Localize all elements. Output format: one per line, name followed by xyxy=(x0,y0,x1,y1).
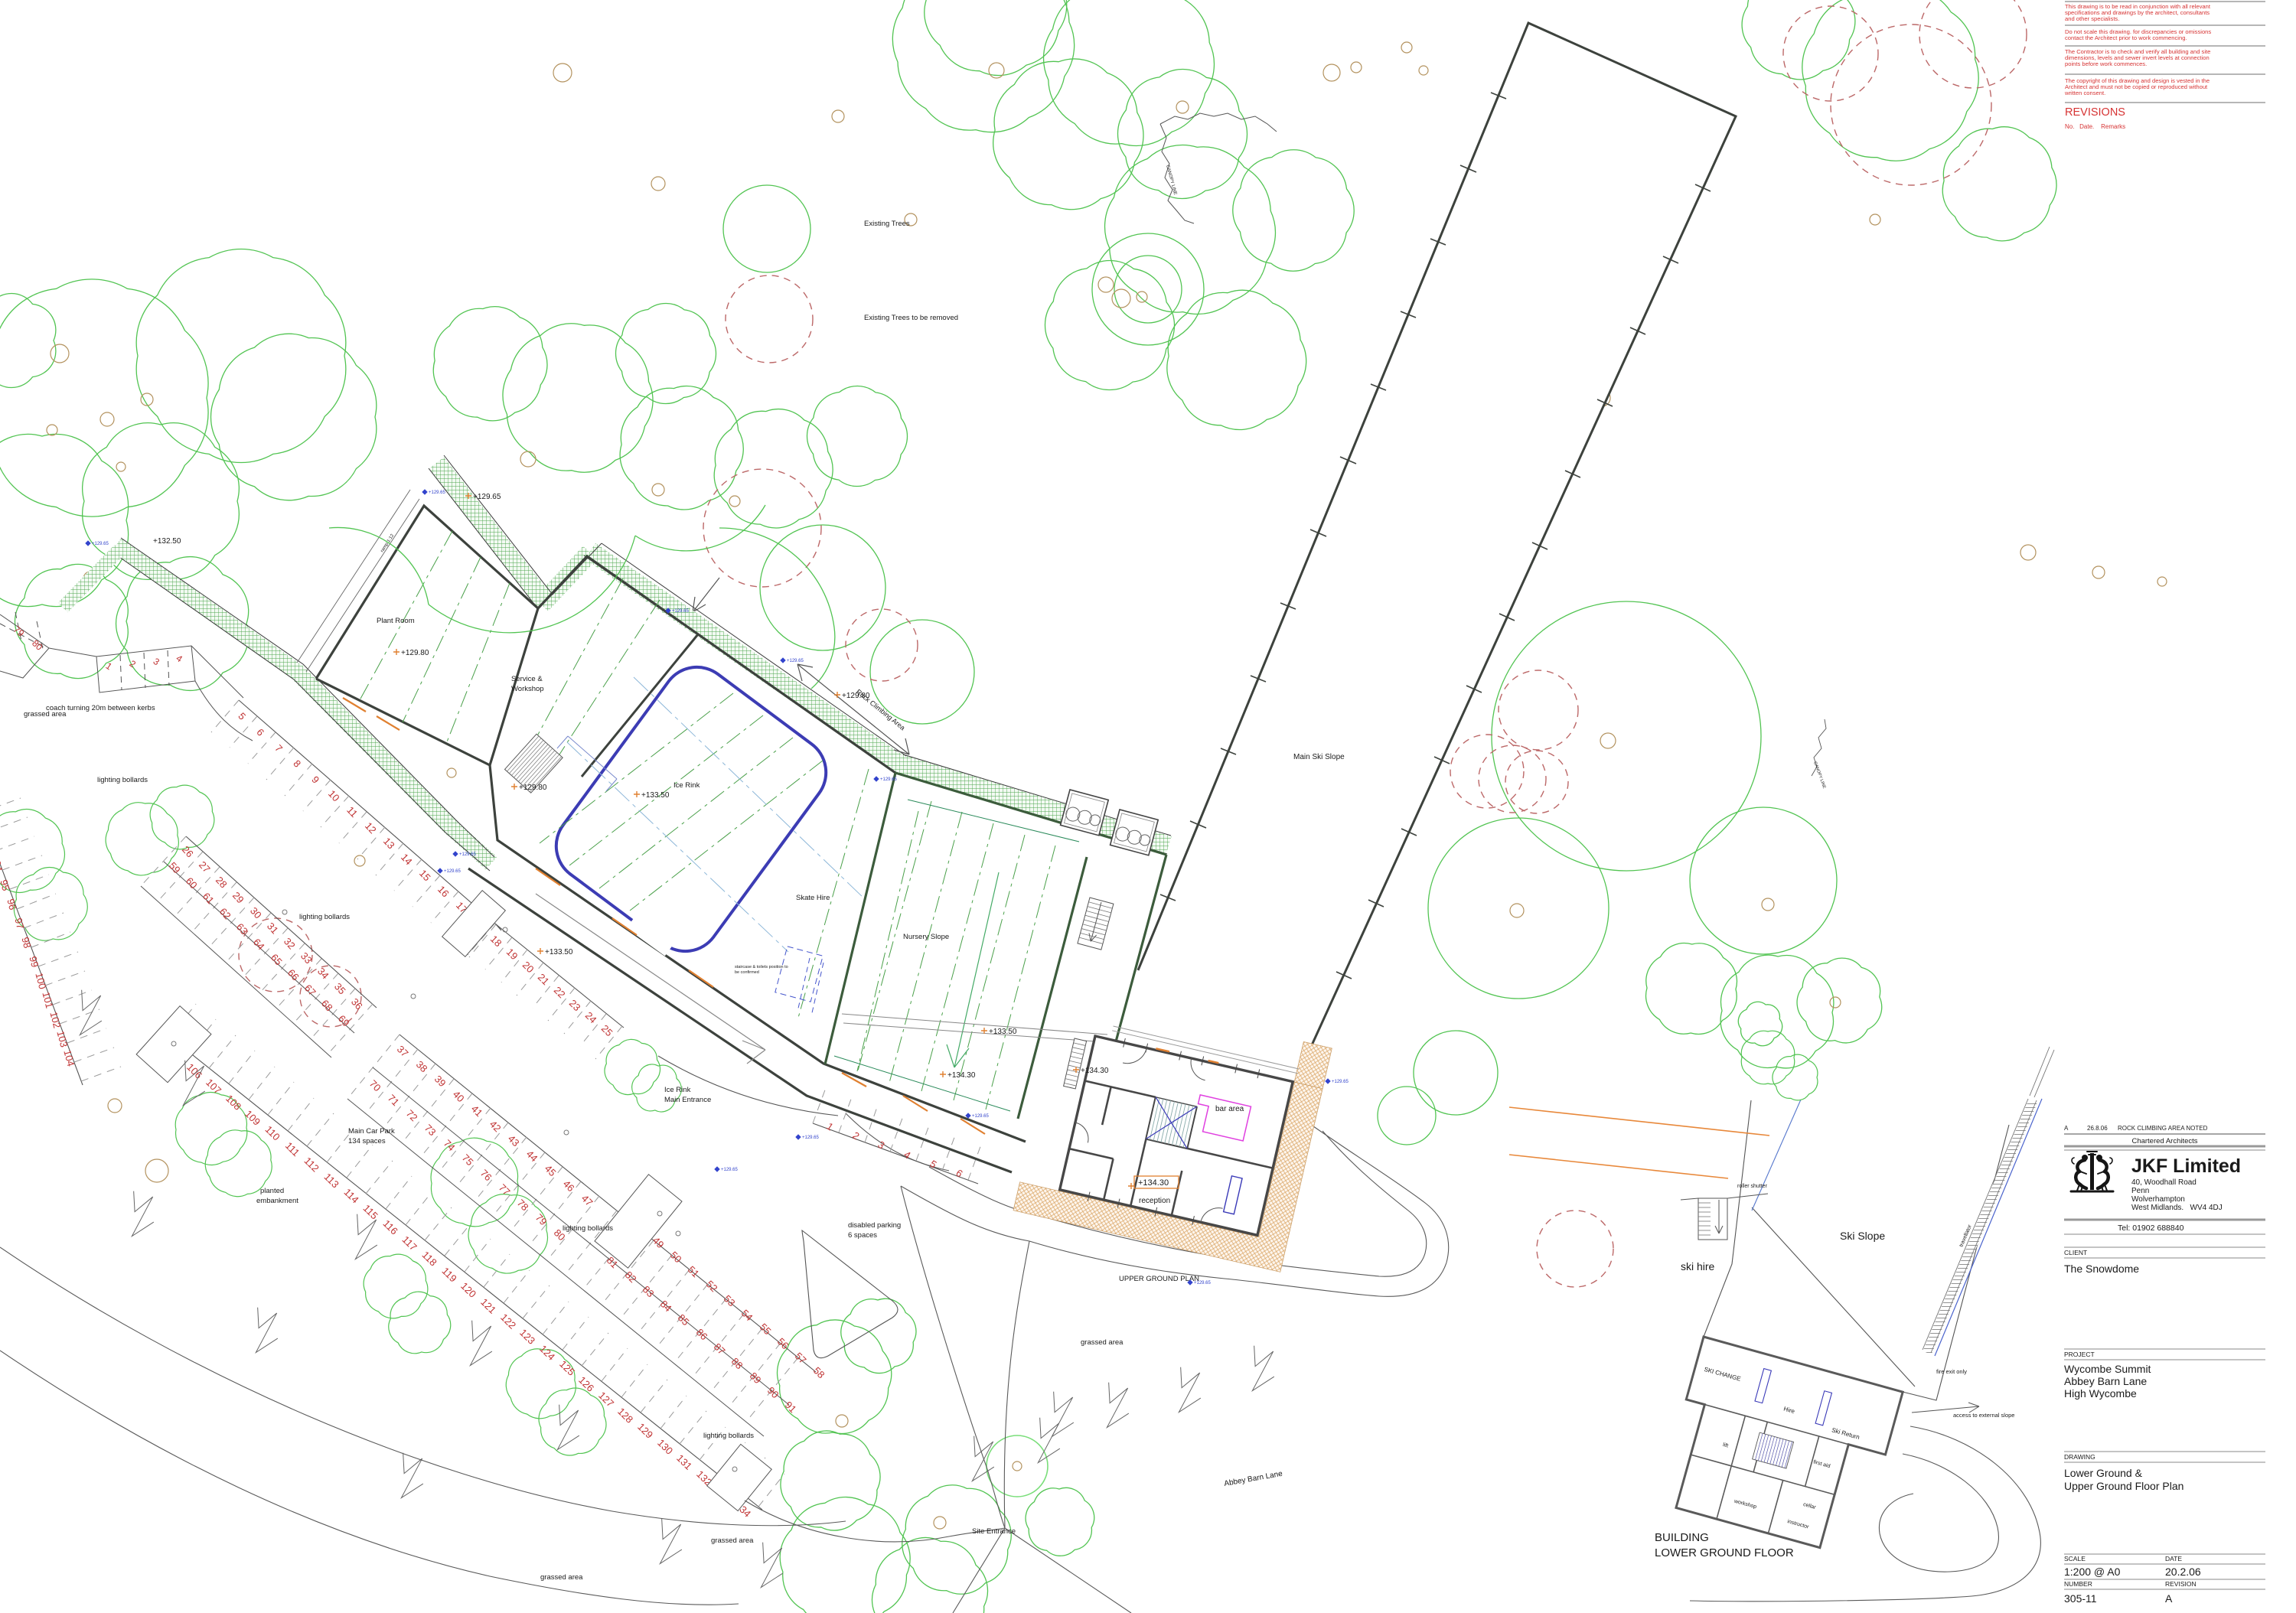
svg-text:6 spaces: 6 spaces xyxy=(848,1231,877,1240)
svg-text:Nursery Slope: Nursery Slope xyxy=(903,933,949,941)
svg-text:LOWER GROUND FLOOR: LOWER GROUND FLOOR xyxy=(1655,1546,1794,1559)
svg-text:be confirmed: be confirmed xyxy=(735,970,759,975)
svg-text:26.8.06: 26.8.06 xyxy=(2087,1125,2108,1132)
svg-text:written consent.: written consent. xyxy=(2064,90,2105,96)
svg-text:Upper Ground Floor Plan: Upper Ground Floor Plan xyxy=(2064,1480,2183,1492)
svg-text:Main Ski Slope: Main Ski Slope xyxy=(1293,753,1345,761)
svg-text:disabled parking: disabled parking xyxy=(848,1221,901,1230)
svg-text:+134.30: +134.30 xyxy=(947,1071,976,1080)
svg-text:SCALE: SCALE xyxy=(2064,1555,2086,1562)
svg-text:+129.65: +129.65 xyxy=(672,609,690,614)
svg-text:+129.65: +129.65 xyxy=(1332,1080,1349,1084)
svg-text:+134.30: +134.30 xyxy=(1138,1178,1169,1188)
svg-text:+129.65: +129.65 xyxy=(1194,1281,1212,1286)
svg-text:Ice Rink: Ice Rink xyxy=(664,1086,691,1094)
svg-text:and other specialists.: and other specialists. xyxy=(2065,15,2119,22)
svg-text:+132.50: +132.50 xyxy=(153,537,181,546)
svg-text:+129.65: +129.65 xyxy=(92,542,109,546)
svg-text:DATE: DATE xyxy=(2165,1555,2182,1562)
svg-text:+129.65: +129.65 xyxy=(444,869,461,874)
svg-text:JKF Limited: JKF Limited xyxy=(2131,1155,2241,1177)
svg-text:+129.65: +129.65 xyxy=(802,1136,820,1140)
svg-text:+129.65: +129.65 xyxy=(429,490,446,495)
svg-text:+129.80: +129.80 xyxy=(519,784,547,792)
svg-text:+129.65: +129.65 xyxy=(787,659,804,663)
svg-text:grassed area: grassed area xyxy=(24,710,67,719)
svg-text:access to external slope: access to external slope xyxy=(1953,1412,2014,1419)
svg-text:contact the Architect prior to: contact the Architect prior to work comm… xyxy=(2065,34,2187,41)
svg-text:Skate Hire: Skate Hire xyxy=(796,894,830,902)
svg-text:grassed area: grassed area xyxy=(540,1573,583,1582)
svg-text:Lower Ground &: Lower Ground & xyxy=(2064,1467,2143,1479)
svg-text:20.2.06: 20.2.06 xyxy=(2165,1566,2201,1578)
svg-text:+129.65: +129.65 xyxy=(880,777,898,782)
svg-text:CLIENT: CLIENT xyxy=(2064,1249,2087,1256)
svg-text:BUILDING: BUILDING xyxy=(1655,1531,1709,1544)
svg-text:Ice Rink: Ice Rink xyxy=(673,781,700,790)
svg-text:Abbey Barn Lane: Abbey Barn Lane xyxy=(2064,1375,2147,1387)
svg-text:PROJECT: PROJECT xyxy=(2064,1351,2095,1358)
svg-text:fire exit only: fire exit only xyxy=(1936,1368,1967,1375)
svg-text:134 spaces: 134 spaces xyxy=(348,1137,386,1145)
svg-text:Site Entrance: Site Entrance xyxy=(972,1527,1016,1536)
svg-text:grassed area: grassed area xyxy=(1081,1338,1124,1347)
svg-text:+129.80: +129.80 xyxy=(842,692,870,700)
svg-text:+133.50: +133.50 xyxy=(545,948,573,956)
svg-text:A: A xyxy=(2165,1592,2173,1605)
svg-text:40, Woodhall Road: 40, Woodhall Road xyxy=(2131,1178,2197,1187)
svg-text:bar area: bar area xyxy=(1215,1105,1244,1113)
svg-text:ROCK CLIMBING AREA NOTED: ROCK CLIMBING AREA NOTED xyxy=(2118,1125,2208,1132)
svg-text:Existing Trees to be removed: Existing Trees to be removed xyxy=(864,314,958,322)
svg-text:+129.65: +129.65 xyxy=(972,1114,990,1119)
svg-text:reception: reception xyxy=(1139,1197,1170,1205)
svg-text:Wolverhampton: Wolverhampton xyxy=(2131,1195,2185,1204)
svg-text:A: A xyxy=(2064,1125,2069,1132)
svg-text:REVISIONS: REVISIONS xyxy=(2065,106,2125,119)
svg-text:grassed area: grassed area xyxy=(711,1536,754,1545)
svg-text:Tel: 01902 688840: Tel: 01902 688840 xyxy=(2118,1224,2184,1233)
svg-text:305-11: 305-11 xyxy=(2064,1592,2097,1605)
svg-text:Wycombe Summit: Wycombe Summit xyxy=(2064,1363,2151,1375)
svg-text:High Wycombe: High Wycombe xyxy=(2064,1387,2137,1400)
svg-text:lighting bollards: lighting bollards xyxy=(299,913,350,921)
svg-text:Penn: Penn xyxy=(2131,1187,2149,1195)
svg-text:+129.65: +129.65 xyxy=(459,852,477,857)
svg-text:planted: planted xyxy=(260,1187,284,1195)
svg-text:Ski Slope: Ski Slope xyxy=(1840,1230,1885,1242)
svg-text:ski hire: ski hire xyxy=(1681,1260,1715,1272)
svg-text:lighting bollards: lighting bollards xyxy=(563,1224,613,1233)
svg-text:lighting bollards: lighting bollards xyxy=(97,776,148,784)
svg-text:points before work commences.: points before work commences. xyxy=(2065,60,2147,67)
svg-text:roller shutter: roller shutter xyxy=(1737,1184,1768,1189)
svg-text:West Midlands. WV4 4DJ: West Midlands. WV4 4DJ xyxy=(2131,1204,2223,1212)
svg-text:Service &: Service & xyxy=(511,675,543,683)
svg-text:lighting bollards: lighting bollards xyxy=(703,1432,754,1440)
svg-text:Main Entrance: Main Entrance xyxy=(664,1096,711,1104)
svg-text:1:200 @ A0: 1:200 @ A0 xyxy=(2064,1566,2121,1578)
svg-text:No. Date. Remarks: No. Date. Remarks xyxy=(2065,123,2125,130)
svg-text:Chartered Architects: Chartered Architects xyxy=(2131,1137,2197,1145)
svg-text:+133.50: +133.50 xyxy=(989,1028,1017,1036)
svg-text:staircase & toilets position t: staircase & toilets position to xyxy=(735,965,788,969)
svg-text:REVISION: REVISION xyxy=(2165,1580,2197,1588)
svg-text:The Snowdome: The Snowdome xyxy=(2064,1263,2139,1275)
svg-text:Plant Room: Plant Room xyxy=(377,617,415,625)
svg-text:embankment: embankment xyxy=(256,1197,298,1205)
svg-text:+133.50: +133.50 xyxy=(641,791,670,800)
svg-text:Main Car Park: Main Car Park xyxy=(348,1127,395,1136)
svg-text:NUMBER: NUMBER xyxy=(2064,1580,2092,1588)
svg-text:+134.30: +134.30 xyxy=(1081,1067,1109,1075)
svg-text:Existing Trees: Existing Trees xyxy=(864,220,910,228)
svg-text:+129.65: +129.65 xyxy=(473,493,501,501)
svg-text:+129.65: +129.65 xyxy=(721,1168,739,1172)
svg-text:+129.80: +129.80 xyxy=(401,649,429,657)
svg-text:DRAWING: DRAWING xyxy=(2064,1453,2095,1461)
svg-text:UPPER GROUND PLAN: UPPER GROUND PLAN xyxy=(1119,1275,1199,1283)
svg-text:Workshop: Workshop xyxy=(511,685,544,693)
